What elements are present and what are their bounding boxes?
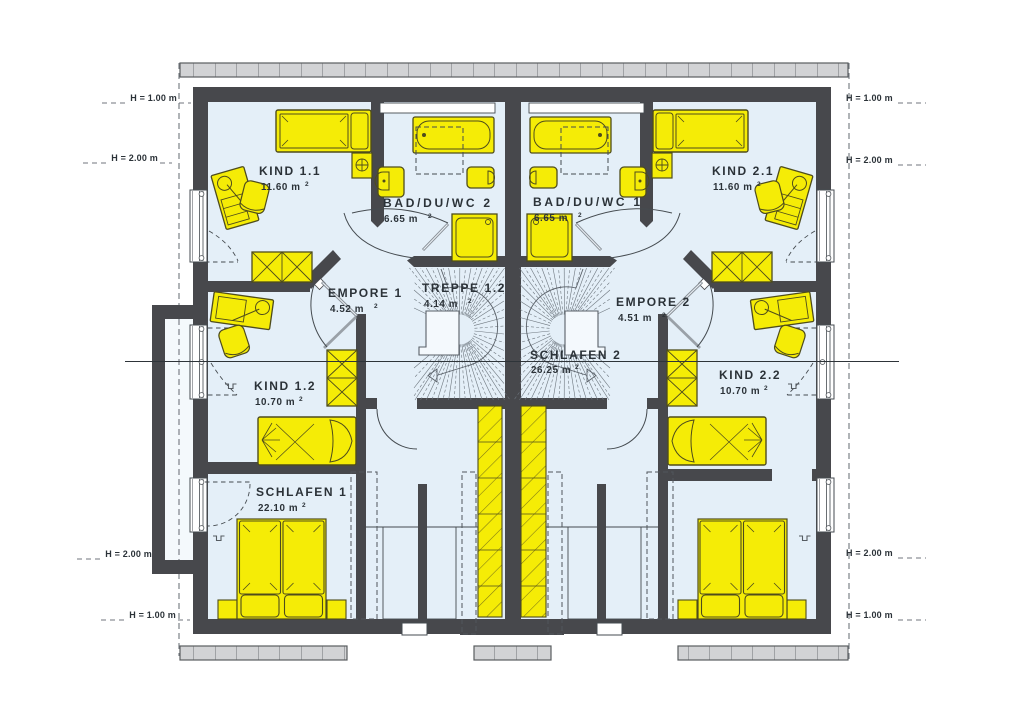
svg-text:H = 1.00 m: H = 1.00 m bbox=[846, 93, 893, 103]
svg-text:H = 2.00 m: H = 2.00 m bbox=[846, 155, 893, 165]
svg-text:11.60 m: 11.60 m bbox=[261, 182, 301, 193]
svg-text:2: 2 bbox=[578, 212, 582, 219]
svg-text:6.65 m: 6.65 m bbox=[384, 214, 418, 225]
svg-text:2: 2 bbox=[575, 364, 579, 371]
svg-text:EMPORE 1: EMPORE 1 bbox=[328, 286, 403, 300]
svg-text:2: 2 bbox=[757, 181, 761, 188]
svg-text:2: 2 bbox=[374, 303, 378, 310]
svg-text:4.14 m: 4.14 m bbox=[424, 299, 458, 310]
svg-text:H = 2.00 m: H = 2.00 m bbox=[111, 153, 158, 163]
svg-text:2: 2 bbox=[299, 396, 303, 403]
svg-text:2: 2 bbox=[302, 502, 306, 509]
svg-text:11.60 m: 11.60 m bbox=[713, 182, 753, 193]
svg-text:6.65 m: 6.65 m bbox=[534, 213, 568, 224]
svg-text:2: 2 bbox=[764, 385, 768, 392]
svg-text:2: 2 bbox=[305, 181, 309, 188]
svg-text:H = 1.00 m: H = 1.00 m bbox=[130, 93, 177, 103]
svg-text:SCHLAFEN 2: SCHLAFEN 2 bbox=[530, 348, 621, 362]
svg-text:10.70 m: 10.70 m bbox=[720, 386, 760, 397]
svg-text:22.10 m: 22.10 m bbox=[258, 503, 298, 514]
svg-text:H = 1.00 m: H = 1.00 m bbox=[129, 610, 176, 620]
svg-text:26.25 m: 26.25 m bbox=[531, 365, 571, 376]
svg-text:EMPORE 2: EMPORE 2 bbox=[616, 295, 691, 309]
svg-text:10.70 m: 10.70 m bbox=[255, 397, 295, 408]
svg-text:2: 2 bbox=[468, 298, 472, 305]
svg-text:BAD/DU/WC 1: BAD/DU/WC 1 bbox=[533, 195, 643, 209]
svg-text:SCHLAFEN 1: SCHLAFEN 1 bbox=[256, 485, 347, 499]
svg-text:4.52 m: 4.52 m bbox=[330, 304, 364, 315]
svg-text:KIND 1.1: KIND 1.1 bbox=[259, 164, 321, 178]
svg-text:BAD/DU/WC 2: BAD/DU/WC 2 bbox=[383, 196, 493, 210]
svg-text:2: 2 bbox=[662, 312, 666, 319]
svg-text:H = 2.00 m: H = 2.00 m bbox=[105, 549, 152, 559]
svg-text:KIND 2.2: KIND 2.2 bbox=[719, 368, 781, 382]
svg-text:H = 1.00 m: H = 1.00 m bbox=[846, 610, 893, 620]
svg-text:KIND 2.1: KIND 2.1 bbox=[712, 164, 774, 178]
svg-text:KIND 1.2: KIND 1.2 bbox=[254, 379, 316, 393]
svg-text:H = 2.00 m: H = 2.00 m bbox=[846, 548, 893, 558]
svg-text:2: 2 bbox=[428, 213, 432, 220]
svg-text:TREPPE 1.2: TREPPE 1.2 bbox=[422, 281, 506, 295]
svg-text:4.51 m: 4.51 m bbox=[618, 313, 652, 324]
